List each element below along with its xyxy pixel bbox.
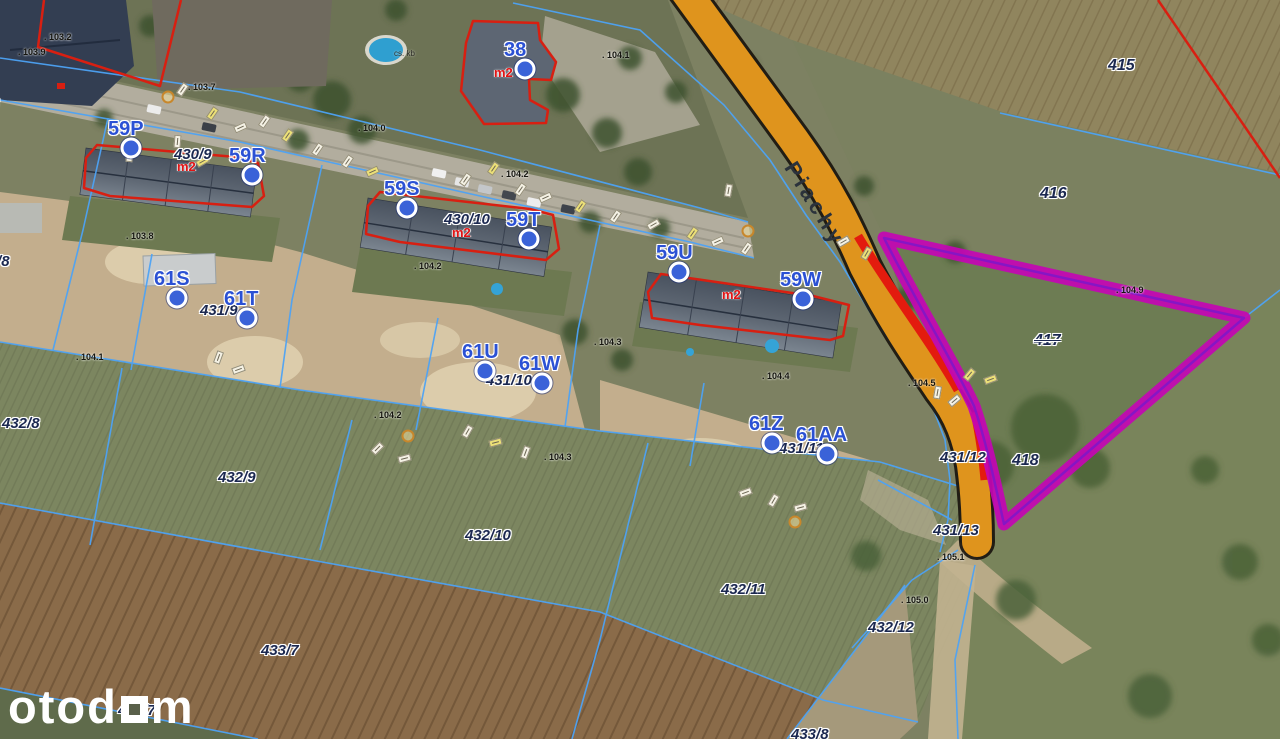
address-marker-dot: [475, 361, 496, 382]
address-marker-dot: [121, 138, 142, 159]
address-marker-dot: [397, 198, 418, 219]
otodom-watermark-logo: otodm: [8, 683, 195, 730]
survey-point: [162, 91, 175, 104]
address-marker-dot: [519, 229, 540, 250]
address-marker-dot: [237, 308, 258, 329]
address-marker-dot: [762, 433, 783, 454]
map-graphics: [0, 0, 1280, 739]
map-image[interactable]: Piachy cs. kb 415416417418430/8430/9430/…: [0, 0, 1280, 739]
address-marker-dot: [793, 289, 814, 310]
watermark-text-prefix: otod: [8, 683, 118, 730]
address-marker-dot: [532, 373, 553, 394]
address-marker-dot: [242, 165, 263, 186]
survey-mark: [173, 135, 181, 149]
address-marker-dot: [817, 444, 838, 465]
survey-point: [789, 516, 802, 529]
address-marker-dot: [669, 262, 690, 283]
address-marker-dot: [515, 59, 536, 80]
watermark-square-glyph: [121, 696, 148, 723]
address-marker-dot: [167, 288, 188, 309]
survey-point: [742, 225, 755, 238]
watermark-text-suffix: m: [151, 683, 195, 730]
survey-point: [402, 430, 415, 443]
